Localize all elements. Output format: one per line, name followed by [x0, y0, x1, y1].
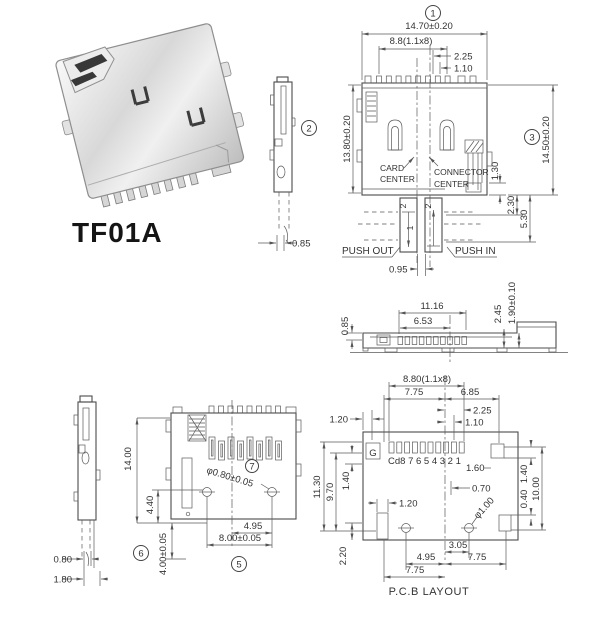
svg-text:5: 5: [236, 560, 241, 571]
dim-pcb-140left: 1.40: [341, 472, 352, 491]
dim-pcb-1000: 10.00: [531, 477, 542, 501]
dim-bside-080: 0.80: [54, 555, 73, 566]
dim-pcb-160: 1.60: [466, 463, 485, 474]
svg-text:2: 2: [306, 124, 311, 135]
callout-7: 7: [246, 460, 259, 473]
svg-text:CENTER: CENTER: [380, 174, 415, 184]
dim-pcb-110: 1.10: [465, 418, 484, 429]
top-view-contacts: [209, 437, 282, 460]
dim-top-400: 4.00±0.05: [158, 533, 169, 575]
svg-text:3: 3: [529, 133, 534, 144]
pcb-pads: [389, 442, 464, 453]
pad-numbers: Cd8 7 6 5 4 3 2 1: [388, 456, 461, 467]
dim-pcb-880: 8.80(1.1x8): [403, 374, 451, 385]
dim-rear-085: 0.85: [340, 317, 351, 336]
top-view-pins: [173, 406, 296, 413]
dim-pcb-970: 9.70: [325, 483, 336, 502]
model-label: TF01A: [72, 217, 163, 248]
front-view: 1 14.70±0.20 8.8(1.1x8) 2.25 1.10 13.80±…: [342, 6, 558, 277]
dim-rear-245: 2.45: [493, 305, 504, 324]
dim-front-130: 1.30: [490, 162, 501, 181]
dim-pcb-1130: 11.30: [312, 475, 323, 498]
top-view: φ0.80±0.05 7 14.00 4.40 4.00±0.05 6 4.95…: [123, 400, 301, 575]
dim-rear-1116: 11.16: [420, 301, 443, 312]
dim-pcb-140right: 1.40: [519, 465, 530, 484]
svg-text:1: 1: [430, 9, 435, 20]
technical-drawing: TF01A 2 0.85: [0, 0, 600, 640]
dim-pcb-070: 0.70: [472, 484, 491, 495]
section-mark: 2: [398, 203, 408, 208]
dim-front-pitch: 8.8(1.1x8): [390, 36, 433, 47]
callout-1: 1: [426, 6, 441, 21]
dim-pcb-775top: 7.75: [405, 387, 424, 398]
dim-rear-653: 6.53: [414, 316, 433, 327]
dim-top-495: 4.95: [244, 521, 263, 532]
dim-top-1400: 14.00: [123, 447, 134, 471]
dim-pcb-775right: 7.75: [468, 552, 487, 563]
dim-pcb-685: 6.85: [461, 387, 480, 398]
dim-pcb-305: 3.05: [449, 540, 468, 551]
svg-text:6: 6: [138, 549, 143, 560]
dim-pcb-775bottom: 7.75: [406, 565, 425, 576]
dim-bside-180: 1.80: [54, 575, 73, 586]
rear-feet: [363, 348, 556, 352]
dim-front-225: 2.25: [454, 52, 473, 63]
svg-text:CENTER: CENTER: [434, 179, 469, 189]
section-mark: 2: [423, 203, 433, 208]
bottom-side-view: 0.80 1.80: [54, 396, 109, 586]
pcb-layout-title: P.C.B LAYOUT: [389, 586, 470, 598]
dim-front-hright: 14.50±0.20: [541, 116, 552, 163]
label-connector-center: CONNECTOR: [434, 167, 489, 177]
label-card-center: CARD: [380, 163, 404, 173]
dim-pcb-225: 2.25: [473, 406, 492, 417]
dim-top-800: 8.00±0.05: [219, 533, 261, 544]
label-push-in: PUSH IN: [455, 246, 496, 257]
dim-pcb-120mid: 1.20: [399, 499, 418, 510]
dim-front-095: 0.95: [389, 265, 408, 276]
pcb-layout: G Cd8 7 6 5 4 3 2 1 8.80(1.1x8) 7.75 6.8…: [312, 374, 546, 598]
dim-side-085: 0.85: [292, 239, 311, 250]
dim-pcb-220: 2.20: [338, 547, 349, 566]
callout-6: 6: [134, 546, 149, 561]
side-view: 2 0.85: [258, 77, 317, 251]
callout-2: 2: [302, 121, 317, 136]
dim-front-width: 14.70±0.20: [405, 21, 452, 32]
svg-text:7: 7: [249, 462, 254, 473]
dim-rear-190: 1.90±0.10: [507, 282, 518, 324]
section-mark: 1: [405, 225, 415, 230]
dim-top-440: 4.40: [145, 496, 156, 515]
label-push-out: PUSH OUT: [342, 246, 394, 257]
dim-front-230: 2.30: [506, 196, 517, 215]
dim-pcb-495: 4.95: [417, 552, 436, 563]
drawing-page: TF01A 2 0.85: [0, 0, 600, 640]
product-photo: [47, 19, 255, 212]
dim-pcb-120top: 1.20: [330, 415, 349, 426]
callout-3: 3: [525, 130, 540, 145]
dim-pcb-hole: φ1.00: [472, 495, 497, 521]
dim-top-hole: φ0.80±0.05: [205, 465, 254, 490]
rear-contacts: [398, 337, 467, 345]
front-pins: [365, 76, 476, 83]
dim-front-530: 5.30: [519, 210, 530, 229]
callout-5: 5: [232, 557, 247, 572]
dim-pcb-040: 0.40: [519, 490, 530, 509]
dim-front-hleft: 13.80±0.20: [342, 115, 353, 162]
rear-view: 11.16 6.53 0.85 2.45 1.90±0.10: [340, 282, 568, 362]
dim-front-110: 1.10: [454, 64, 473, 75]
pad-g-label: G: [369, 448, 376, 459]
